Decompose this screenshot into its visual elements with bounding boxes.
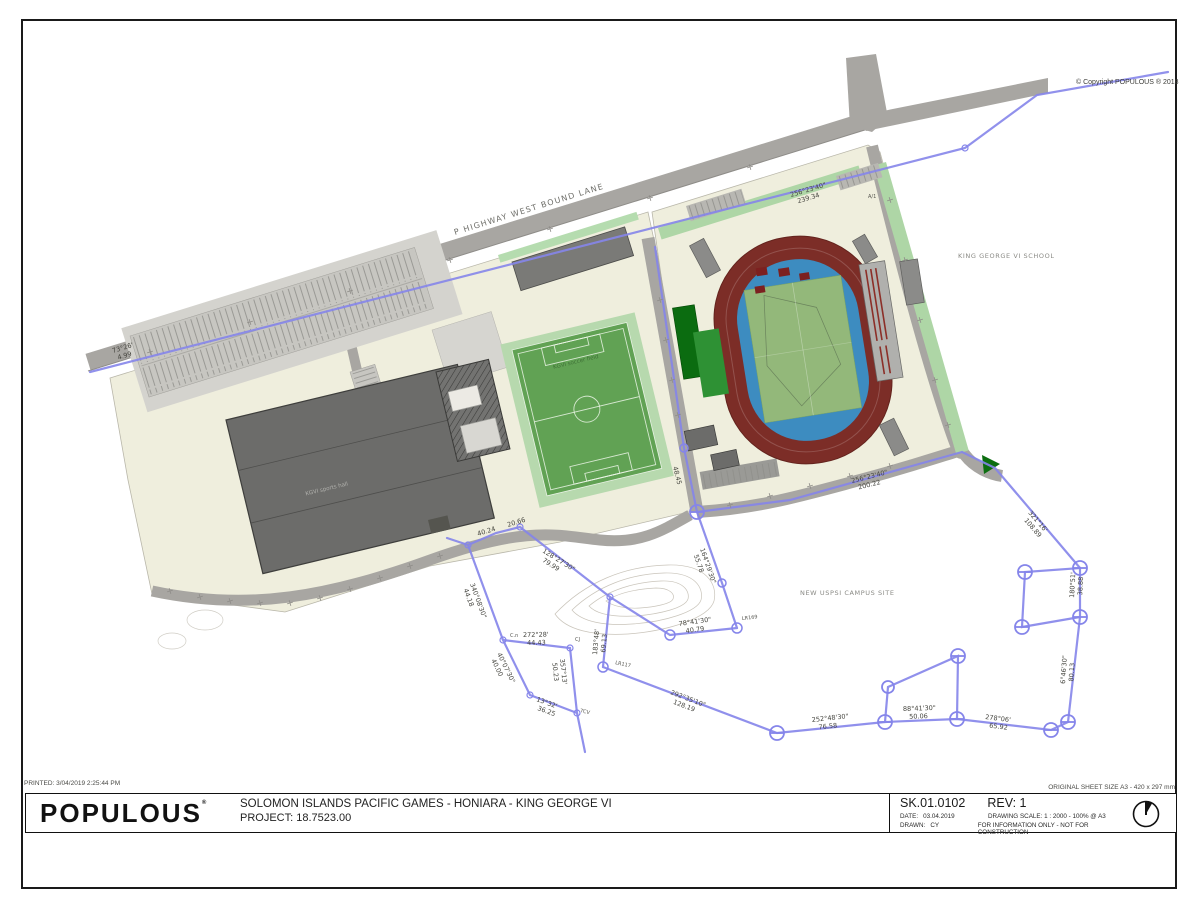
survey-marker-label: CJ — [575, 637, 580, 643]
lot-label-a1: A/1 — [868, 194, 876, 200]
drawing-number: SK.01.0102 — [900, 796, 965, 810]
disclaimer: FOR INFORMATION ONLY - NOT FOR CONSTRUCT… — [978, 822, 1122, 836]
project-number: PROJECT: 18.7523.00 — [240, 812, 879, 824]
project-title: SOLOMON ISLANDS PACIFIC GAMES - HONIARA … — [240, 798, 879, 810]
project-title-cell: SOLOMON ISLANDS PACIFIC GAMES - HONIARA … — [230, 794, 889, 832]
north-arrow-icon — [1122, 796, 1170, 832]
drawn-value: CY — [930, 822, 939, 836]
printed-timestamp: PRINTED: 3/04/2019 2:25:44 PM — [24, 780, 120, 787]
survey-marker-label: C.n — [510, 633, 518, 639]
logo-cell: POPULOUS® — [26, 794, 230, 832]
populous-logo: POPULOUS® — [40, 798, 206, 829]
survey-label: 357°13'50.23 — [550, 658, 569, 685]
survey-marker-label: TCV — [579, 708, 591, 717]
survey-label: 128°27'30"79.99 — [537, 547, 577, 580]
survey-label: 180°51'38.88 — [1068, 572, 1085, 599]
drawn-label: DRAWN: — [900, 822, 925, 836]
survey-marker-label: LR117 — [615, 660, 632, 669]
survey-label: 321°16'108.89 — [1020, 509, 1049, 539]
copyright-note: © Copyright POPULOUS ® 2018 — [1076, 79, 1179, 86]
date-label: DATE: — [900, 813, 918, 820]
survey-label: 13°32'36.25 — [533, 695, 560, 718]
drawing-sheet: KGVI sports hall — [0, 0, 1200, 911]
site-plan-canvas: KGVI sports hall — [0, 0, 1200, 911]
revision: REV: 1 — [987, 796, 1026, 810]
school-label: KING GEORGE VI SCHOOL — [958, 252, 1055, 260]
campus-label: NEW USPSI CAMPUS SITE — [800, 589, 895, 597]
survey-label: 88°41'30"50.06 — [903, 704, 936, 721]
drawing-info-cell: SK.01.0102 REV: 1 DATE:03.04.2019 DRAWIN… — [889, 794, 1176, 832]
survey-label: 292°35'10"128.19 — [666, 688, 706, 716]
date-value: 03.04.2019 — [923, 813, 955, 820]
survey-label: 272°28'44.43 — [523, 631, 549, 647]
title-block: POPULOUS® SOLOMON ISLANDS PACIFIC GAMES … — [25, 793, 1177, 833]
sheet-size-note: ORIGINAL SHEET SIZE A3 - 420 x 297 mm — [1048, 784, 1175, 791]
drawing-scale: DRAWING SCALE: 1 : 2000 - 100% @ A3 — [988, 813, 1106, 820]
survey-marker-label: LR169 — [742, 614, 758, 622]
